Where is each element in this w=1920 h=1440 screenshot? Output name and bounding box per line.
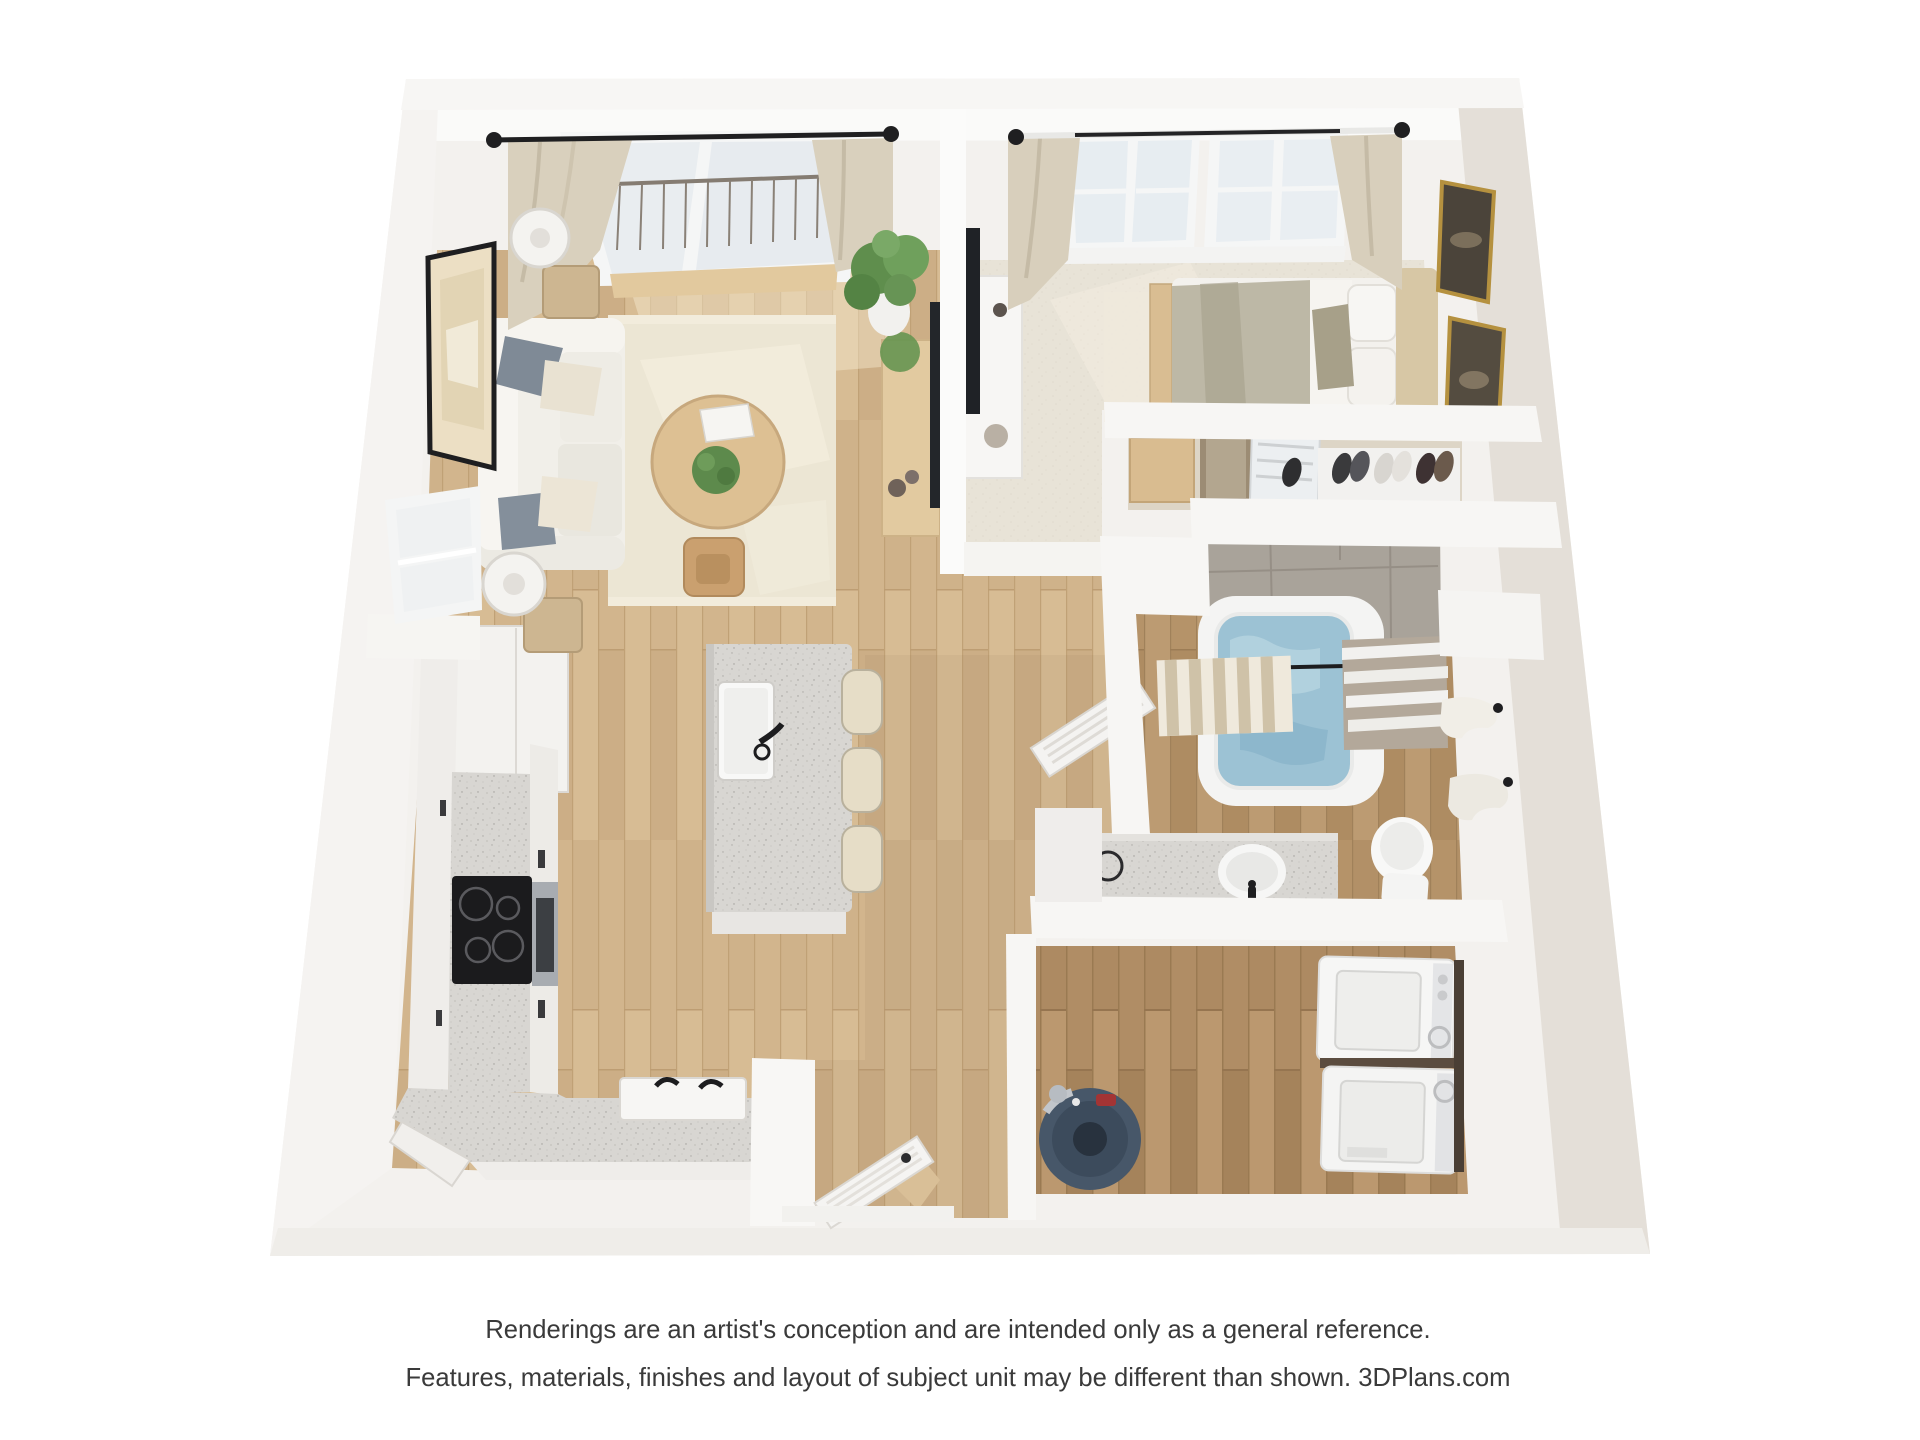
svg-text:Features, materials, finishes: Features, materials, finishes and layout… xyxy=(406,1364,1511,1392)
svg-text:Renderings are an artist's con: Renderings are an artist's conception an… xyxy=(485,1316,1430,1344)
